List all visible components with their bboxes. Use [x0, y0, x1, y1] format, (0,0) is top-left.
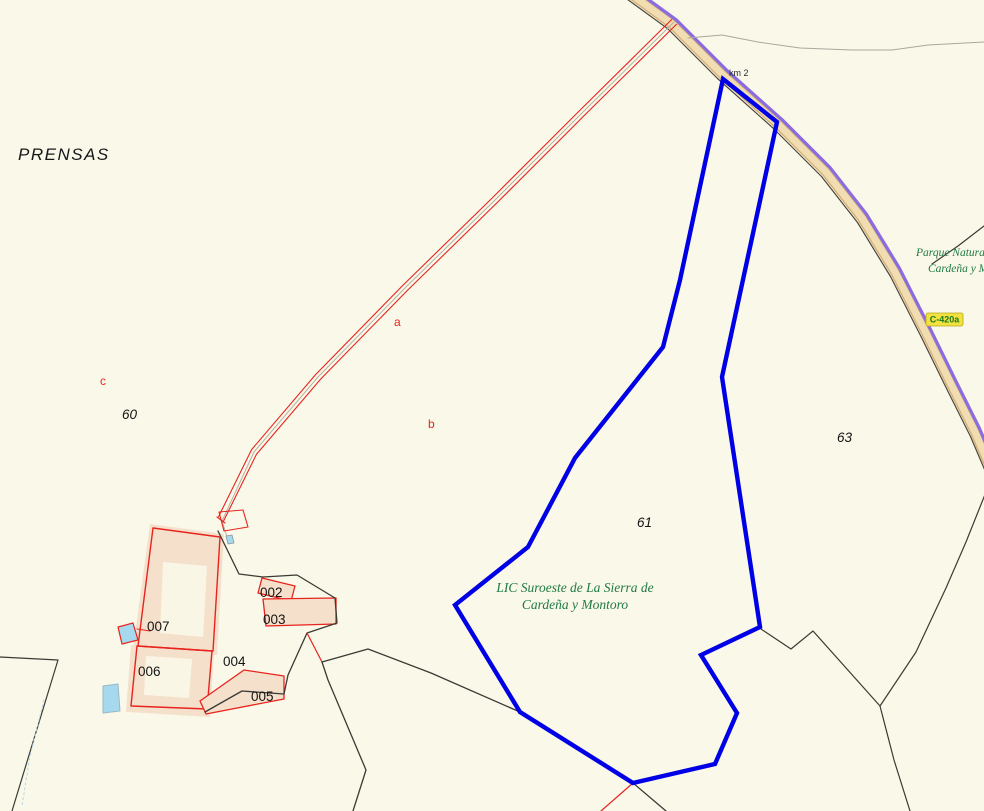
- track-gray-centerline: [222, 22, 674, 543]
- label-lic-line2: Cardeña y Montoro: [522, 597, 628, 612]
- label-park-line1: Parque Natural: [915, 247, 984, 259]
- track-red-edge-lower: [223, 24, 676, 521]
- label-km-marker: km 2: [729, 68, 749, 78]
- label-letter-b: b: [428, 417, 435, 431]
- boundary-south-exit: [633, 783, 666, 811]
- map-viewport[interactable]: PRENSAS606163007006004002003005abckm 2C-…: [0, 0, 984, 811]
- label-subparcel-003: 003: [263, 612, 286, 627]
- boundary-zigzag-east: [761, 629, 880, 706]
- red-boundary-segment-2: [601, 783, 633, 811]
- boundary-southeast-curve: [880, 492, 984, 811]
- label-parcel-61: 61: [637, 515, 652, 530]
- pool-upper[interactable]: [118, 623, 138, 644]
- label-subparcel-006: 006: [138, 664, 161, 679]
- road-casing: [628, 0, 984, 472]
- label-park-line2: Cardeña y M: [928, 263, 984, 275]
- label-letter-a: a: [394, 315, 401, 329]
- label-subparcel-007: 007: [147, 619, 170, 634]
- gray-path-curve: [688, 35, 984, 50]
- label-parcel-63: 63: [837, 430, 853, 445]
- tiny-pool: [226, 535, 234, 544]
- road-edge-line: [624, 0, 984, 477]
- parcel-61-selection-outline[interactable]: [455, 79, 777, 783]
- boundary-to-selection: [322, 649, 520, 712]
- boundary-south-long: [322, 662, 366, 811]
- boundary-southwest: [0, 657, 58, 811]
- label-parcel-60: 60: [122, 407, 138, 422]
- label-road-ref: C-420a: [930, 315, 961, 325]
- track-red-edge-upper: [219, 20, 672, 517]
- label-lic-line1: LIC Suroeste de La Sierra de: [495, 580, 653, 595]
- label-letter-c: c: [100, 374, 106, 388]
- label-subparcel-004: 004: [223, 654, 246, 669]
- red-boundary-segment-1: [307, 633, 322, 662]
- cadastral-map-canvas[interactable]: PRENSAS606163007006004002003005abckm 2C-…: [0, 0, 984, 811]
- road-purple-line: [632, 0, 984, 468]
- pool-lower[interactable]: [103, 684, 120, 713]
- label-subparcel-005: 005: [251, 689, 274, 704]
- label-subparcel-002: 002: [260, 585, 283, 600]
- label-toponym-prensas: PRENSAS: [18, 145, 110, 164]
- road-surface: [628, 0, 984, 472]
